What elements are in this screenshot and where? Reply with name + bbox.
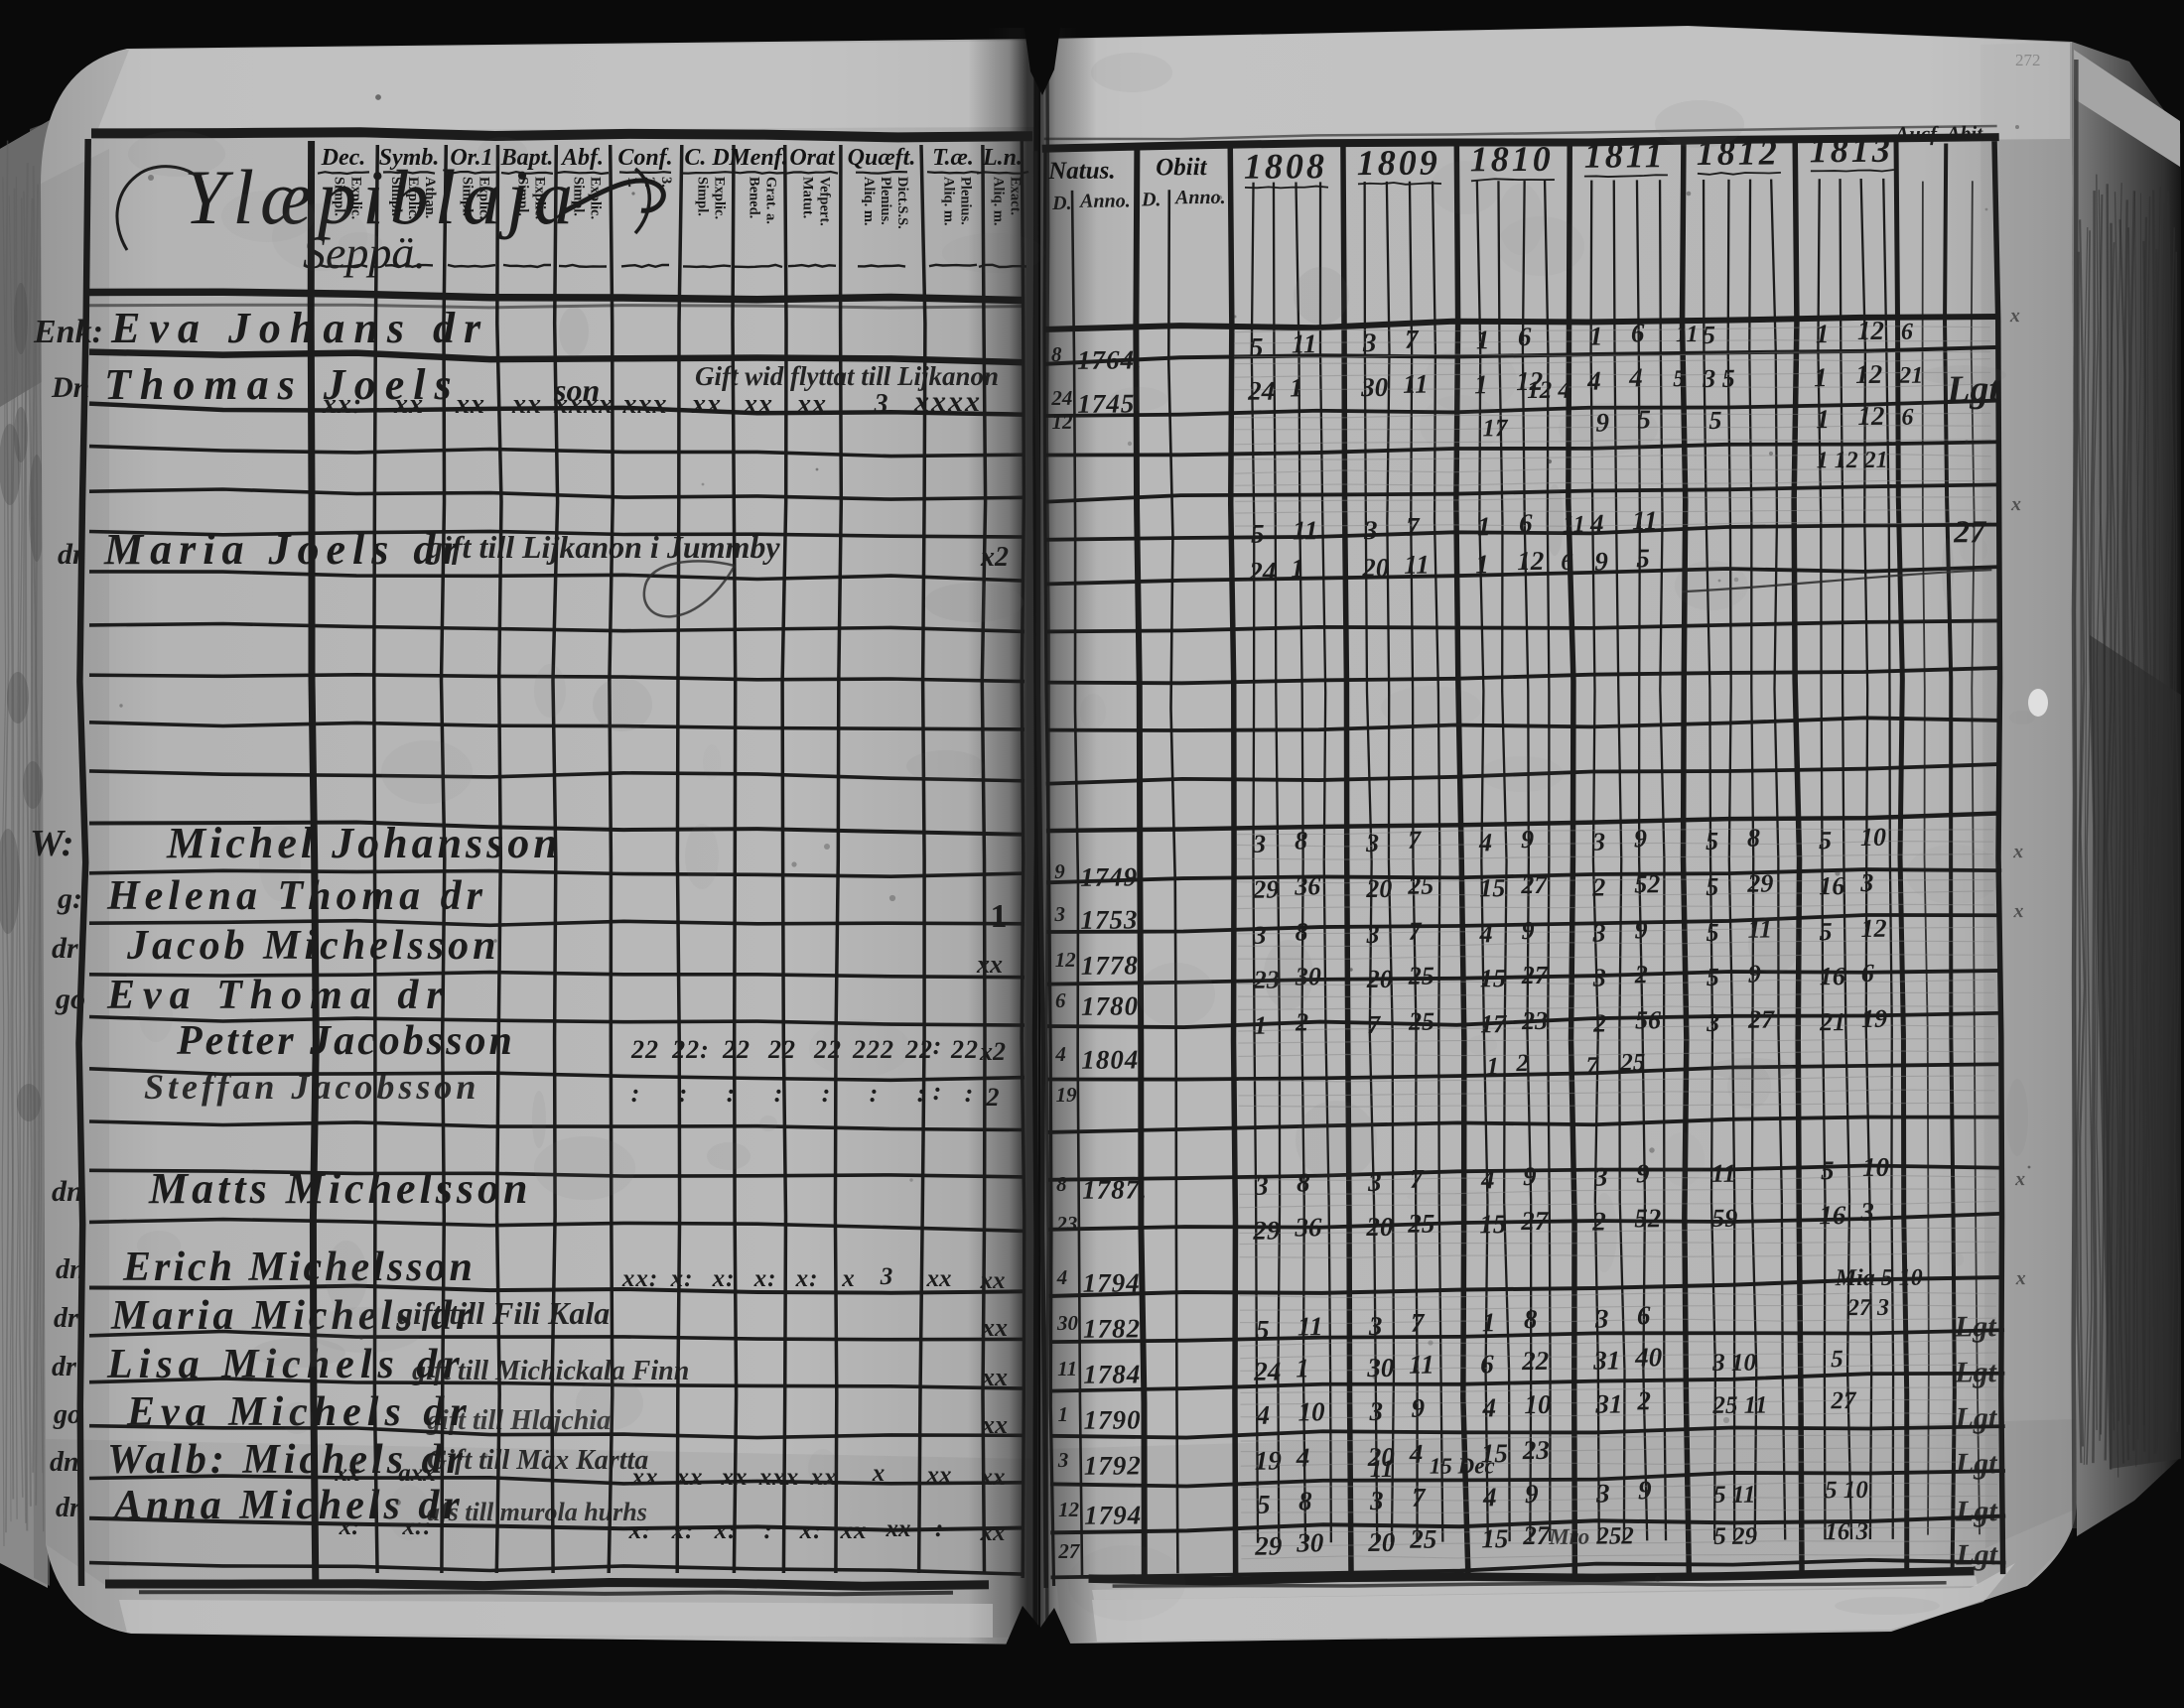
svg-text:29: 29 <box>1252 875 1279 904</box>
svg-text:6: 6 <box>1631 318 1645 347</box>
svg-text:9: 9 <box>1634 824 1647 853</box>
svg-text:52: 52 <box>1634 1203 1661 1233</box>
svg-text:xx: xx <box>980 1519 1006 1546</box>
svg-text:24: 24 <box>1248 557 1276 587</box>
svg-text:xx: xx <box>743 389 773 420</box>
svg-text:22:: 22: <box>671 1035 710 1064</box>
svg-text:Matut.: Matut. <box>800 177 816 218</box>
svg-text:L.n.: L.n. <box>982 145 1023 171</box>
svg-text:4: 4 <box>1255 1400 1270 1430</box>
svg-text:Simpl.: Simpl. <box>388 177 404 216</box>
svg-text:8: 8 <box>1747 824 1760 853</box>
svg-text:29: 29 <box>1254 1531 1283 1561</box>
svg-text:24: 24 <box>1253 1357 1281 1386</box>
svg-text:Jacob Michelsson: Jacob Michelsson <box>126 923 500 969</box>
svg-text:dn: dn <box>50 1447 79 1478</box>
svg-text:22: 22 <box>950 1035 979 1064</box>
svg-text:5: 5 <box>1703 321 1715 349</box>
svg-text:xx: xx <box>840 1517 868 1544</box>
svg-text:7: 7 <box>1406 512 1421 542</box>
svg-text:x:: x: <box>799 1517 823 1544</box>
svg-text:11: 11 <box>1297 1311 1323 1341</box>
svg-text:7: 7 <box>1410 1164 1425 1194</box>
svg-text:dn: dn <box>52 1175 83 1208</box>
svg-text:x:: x: <box>753 1265 777 1292</box>
svg-text:x: x <box>2015 1267 2026 1289</box>
svg-text:Plenius.: Plenius. <box>958 177 974 225</box>
svg-text:21: 21 <box>1819 1007 1845 1036</box>
svg-text:27 3: 27 3 <box>1846 1295 1889 1321</box>
svg-text:1780: 1780 <box>1081 990 1139 1020</box>
svg-text:3.: 3. <box>658 177 674 188</box>
svg-text:x:: x: <box>339 1513 360 1540</box>
svg-text:x2: x2 <box>980 542 1009 573</box>
svg-text:Mia 5 10: Mia 5 10 <box>1835 1265 1923 1292</box>
svg-text:5 10: 5 10 <box>1825 1477 1868 1504</box>
svg-text:xx: xx <box>796 389 827 420</box>
svg-text:11: 11 <box>1563 512 1585 538</box>
svg-text:go: go <box>55 983 85 1015</box>
svg-text:3: 3 <box>1592 964 1606 992</box>
svg-text:xx: xx <box>691 389 722 420</box>
svg-text:1: 1 <box>1477 511 1491 541</box>
svg-text:30: 30 <box>1296 1527 1324 1557</box>
svg-text:3 10: 3 10 <box>1711 1350 1756 1377</box>
svg-text:xx: xx <box>980 1267 1006 1294</box>
svg-text:xx: xx <box>926 1265 952 1292</box>
svg-text:x: x <box>2012 900 2023 922</box>
svg-text:12: 12 <box>1051 410 1073 434</box>
svg-text:6: 6 <box>1518 322 1532 351</box>
svg-text:1813: 1813 <box>1810 130 1893 171</box>
svg-text:6: 6 <box>1519 508 1533 538</box>
svg-text:23: 23 <box>1521 1006 1548 1035</box>
svg-text:20: 20 <box>1366 965 1393 993</box>
svg-text:22: 22 <box>767 1035 796 1064</box>
svg-text:11: 11 <box>1293 515 1318 545</box>
svg-text:3: 3 <box>1254 1171 1269 1201</box>
svg-text:31: 31 <box>1592 1346 1620 1376</box>
svg-text:22: 22 <box>630 1035 659 1064</box>
svg-text:4: 4 <box>1296 1442 1310 1472</box>
svg-text:3: 3 <box>1053 902 1065 926</box>
svg-text:2: 2 <box>1295 1007 1308 1036</box>
svg-text:3: 3 <box>1368 1311 1383 1341</box>
svg-text:22: 22 <box>1521 1346 1549 1376</box>
svg-text:Eva Johans dr: Eva Johans dr <box>110 304 489 352</box>
svg-text:dr: dr <box>58 538 84 571</box>
svg-text:22: 22 <box>722 1035 751 1064</box>
svg-text:8: 8 <box>1051 342 1062 366</box>
svg-text:1808: 1808 <box>1244 146 1327 187</box>
svg-text:27: 27 <box>1747 1005 1775 1034</box>
svg-text:29: 29 <box>1252 1216 1281 1246</box>
svg-text:axx: axx <box>398 1460 436 1487</box>
svg-text:Symb.: Symb. <box>379 145 440 171</box>
svg-text:dr: dr <box>56 1493 81 1523</box>
svg-text:3: 3 <box>1592 919 1606 948</box>
svg-text::: : <box>917 1079 926 1108</box>
svg-text:T.æ.: T.æ. <box>932 145 974 171</box>
svg-text:15: 15 <box>1479 1209 1506 1239</box>
svg-text:gift till Lijkanon i Jummby: gift till Lijkanon i Jummby <box>426 529 780 565</box>
svg-text:1764.: 1764. <box>1077 344 1143 374</box>
svg-text:afs till murola hurhs: afs till murola hurhs <box>427 1498 647 1526</box>
svg-text:29: 29 <box>1746 869 1773 898</box>
svg-text:Aliq. m.: Aliq. m. <box>991 177 1007 226</box>
svg-text:dr: dr <box>52 932 78 965</box>
svg-text:3: 3 <box>1057 1448 1069 1472</box>
svg-text:9: 9 <box>1054 859 1065 883</box>
svg-text:5 11: 5 11 <box>1713 1482 1756 1509</box>
svg-text:x: x <box>2010 493 2021 515</box>
svg-text::: : <box>965 1079 974 1108</box>
svg-text:11: 11 <box>1370 1456 1394 1483</box>
svg-text:x:: x: <box>671 1517 695 1544</box>
svg-text:11: 11 <box>1292 328 1317 358</box>
svg-text:12: 12 <box>1055 948 1077 972</box>
svg-text:5: 5 <box>1673 366 1685 392</box>
svg-text:Abf.: Abf. <box>560 145 604 171</box>
svg-text:12: 12 <box>1058 1498 1080 1521</box>
svg-text:xx: xx <box>926 1462 952 1489</box>
svg-text:4: 4 <box>1056 1265 1068 1289</box>
svg-text:xx: xx <box>455 389 485 420</box>
svg-text:6: 6 <box>1861 959 1874 987</box>
svg-text:9: 9 <box>1521 825 1534 854</box>
svg-text:xx:: xx: <box>621 1265 658 1292</box>
svg-text:21: 21 <box>1898 363 1923 389</box>
svg-text:Explic.: Explic. <box>712 177 728 219</box>
svg-text:3: 3 <box>1363 515 1378 545</box>
svg-text:25: 25 <box>1407 1209 1434 1239</box>
svg-text:1: 1 <box>991 898 1008 935</box>
svg-text:12: 12 <box>1860 914 1886 943</box>
svg-text:5: 5 <box>1819 917 1832 946</box>
svg-text:Simpl.: Simpl. <box>460 177 476 216</box>
svg-text:xxx: xxx <box>758 1464 800 1491</box>
svg-text:11: 11 <box>1711 1159 1736 1188</box>
svg-text:x: x <box>2012 841 2023 862</box>
svg-text:Aliq. m.: Aliq. m. <box>941 177 957 226</box>
svg-text:Simpl.: Simpl. <box>571 177 587 216</box>
svg-text:5: 5 <box>1706 963 1719 991</box>
svg-text:x: x <box>2009 305 2020 327</box>
svg-text:xxxx: xxxx <box>553 389 614 420</box>
svg-text:Petter Jacobsson: Petter Jacobsson <box>176 1018 515 1064</box>
svg-text:Bened.: Bened. <box>747 177 762 218</box>
svg-text:gift till Fili Kala: gift till Fili Kala <box>396 1295 610 1331</box>
svg-text:Gift till Mäx Kartta: Gift till Mäx Kartta <box>427 1445 648 1476</box>
svg-text:27: 27 <box>1057 1539 1081 1563</box>
svg-text:1749: 1749 <box>1080 861 1138 891</box>
svg-text:25: 25 <box>1408 1007 1434 1036</box>
svg-text:5 29: 5 29 <box>1713 1523 1757 1550</box>
svg-text::: : <box>822 1079 831 1108</box>
svg-text:15 Dec: 15 Dec <box>1430 1453 1495 1478</box>
svg-text:24: 24 <box>1050 386 1072 410</box>
svg-text:6: 6 <box>1901 405 1913 431</box>
svg-text:5: 5 <box>1706 827 1718 855</box>
svg-text:19: 19 <box>1056 1083 1078 1107</box>
svg-text:xx: xx <box>393 389 424 420</box>
svg-text:D.: D. <box>1141 189 1161 210</box>
svg-text:dr: dr <box>52 1352 77 1382</box>
svg-text:Dict.S.S.: Dict.S.S. <box>894 177 910 229</box>
svg-text:1790.: 1790. <box>1083 1404 1149 1434</box>
svg-text:25: 25 <box>1619 1049 1645 1076</box>
svg-text:16: 16 <box>1819 871 1844 900</box>
svg-text:56: 56 <box>1635 1005 1661 1034</box>
svg-text:1: 1 <box>1290 372 1303 402</box>
svg-text:1: 1 <box>1589 322 1603 351</box>
svg-text:1: 1 <box>1296 1353 1309 1382</box>
svg-text:5: 5 <box>1257 1490 1271 1519</box>
svg-text:Quæft.: Quæft. <box>848 145 916 171</box>
svg-text:xx: xx <box>631 1464 659 1491</box>
svg-text:30: 30 <box>1366 1353 1395 1382</box>
svg-text:5: 5 <box>1251 519 1265 549</box>
svg-text::: : <box>870 1079 879 1108</box>
svg-text:Conf.: Conf. <box>617 145 672 171</box>
svg-text:4: 4 <box>1589 509 1604 539</box>
svg-text:xxxx: xxxx <box>913 385 982 418</box>
svg-text:12: 12 <box>1857 316 1884 345</box>
svg-text:xx: xx <box>721 1464 749 1491</box>
svg-text::: : <box>727 1079 736 1108</box>
svg-text:xx: xx <box>511 389 542 420</box>
svg-text:31: 31 <box>1594 1388 1622 1418</box>
svg-text:1: 1 <box>1816 404 1830 434</box>
svg-text:27: 27 <box>1830 1387 1857 1414</box>
svg-text:Matts Michelsson: Matts Michelsson <box>148 1164 532 1213</box>
svg-text:5: 5 <box>1708 406 1721 435</box>
svg-text:1: 1 <box>1482 1307 1496 1337</box>
svg-text:5: 5 <box>1256 1315 1270 1345</box>
svg-text:Lgt: Lgt <box>1954 1310 1998 1343</box>
svg-text:3: 3 <box>1859 1197 1874 1227</box>
svg-text:6: 6 <box>1055 988 1066 1012</box>
svg-text:8: 8 <box>1297 1167 1310 1197</box>
svg-text:40: 40 <box>1634 1342 1663 1372</box>
svg-text:2.: 2. <box>641 177 657 188</box>
svg-text:7: 7 <box>1408 917 1422 946</box>
svg-text:xx: xx <box>676 1464 704 1491</box>
svg-text:Mro: Mro <box>1548 1524 1589 1549</box>
svg-text:5: 5 <box>1821 1155 1835 1185</box>
svg-text:4: 4 <box>1481 1392 1496 1422</box>
svg-text::: : <box>679 1079 688 1108</box>
svg-text:3: 3 <box>1368 1396 1383 1426</box>
svg-text:4: 4 <box>1409 1439 1424 1469</box>
svg-text:xxx: xxx <box>622 389 668 420</box>
svg-text:1794.: 1794. <box>1083 1267 1149 1297</box>
svg-text:xx: xx <box>981 1363 1008 1391</box>
svg-text:W:: W: <box>30 823 73 864</box>
svg-text:x:: x: <box>670 1265 694 1292</box>
svg-text:Explic.: Explic. <box>532 177 548 219</box>
svg-text:Dec.: Dec. <box>321 145 366 171</box>
svg-text:Aliq. m.: Aliq. m. <box>861 177 877 226</box>
svg-text:Simpl.: Simpl. <box>515 177 531 216</box>
svg-text:go: go <box>53 1399 81 1430</box>
svg-text:x:: x: <box>714 1517 738 1544</box>
svg-text:Plenius.: Plenius. <box>878 177 893 225</box>
svg-text:1 12 21: 1 12 21 <box>1817 448 1888 473</box>
svg-text:Exact.: Exact. <box>1008 177 1024 215</box>
svg-text::: : <box>935 1515 943 1542</box>
svg-text:27: 27 <box>1520 870 1548 899</box>
svg-text:11: 11 <box>1404 550 1430 580</box>
svg-text:Michel Johansson: Michel Johansson <box>166 819 562 867</box>
svg-text:Athan.: Athan. <box>422 177 438 218</box>
svg-text:3: 3 <box>1859 868 1873 897</box>
svg-text:3: 3 <box>1365 829 1379 857</box>
svg-text:4: 4 <box>1480 1164 1495 1194</box>
svg-text:36: 36 <box>1294 1212 1322 1242</box>
svg-text:2: 2 <box>1634 960 1648 988</box>
svg-text:x:: x: <box>712 1265 736 1292</box>
svg-text:8: 8 <box>1295 826 1307 854</box>
svg-text:3: 3 <box>1591 828 1605 856</box>
svg-text:25: 25 <box>1408 962 1434 990</box>
svg-text:1778: 1778 <box>1081 950 1139 980</box>
svg-text:Lgt: Lgt <box>1954 1401 1998 1434</box>
svg-text:1.: 1. <box>624 177 640 188</box>
svg-text:11: 11 <box>1676 322 1699 347</box>
svg-text:xx:: xx: <box>322 389 362 420</box>
svg-text:Explic.: Explic. <box>405 177 421 219</box>
svg-text:36: 36 <box>1294 871 1320 900</box>
svg-text:9: 9 <box>1525 1479 1539 1509</box>
svg-text:Anno.: Anno. <box>1173 187 1226 208</box>
svg-text:9: 9 <box>1594 547 1608 577</box>
svg-text:x2: x2 <box>979 1037 1006 1066</box>
svg-text:16: 16 <box>1819 1200 1846 1230</box>
svg-text::: : <box>774 1079 783 1108</box>
svg-text:7: 7 <box>1412 1483 1427 1512</box>
svg-text:9: 9 <box>1634 915 1647 944</box>
svg-text:3: 3 <box>1595 1479 1610 1509</box>
svg-text:1: 1 <box>1814 362 1828 392</box>
svg-text:12: 12 <box>1517 546 1544 576</box>
svg-text:x: x <box>2014 1168 2025 1190</box>
svg-text:1: 1 <box>1291 553 1304 583</box>
svg-text:17: 17 <box>1480 1009 1507 1038</box>
svg-text:gift till Michickala Finn: gift till Michickala Finn <box>411 1356 689 1386</box>
svg-text:2: 2 <box>1515 1050 1529 1077</box>
svg-text:5: 5 <box>1706 918 1718 947</box>
svg-text:6: 6 <box>1901 320 1913 345</box>
svg-text:3: 3 <box>1366 920 1380 949</box>
svg-text:23: 23 <box>1055 1212 1077 1236</box>
svg-text:27: 27 <box>1520 1206 1550 1236</box>
svg-text:4: 4 <box>1054 1042 1066 1066</box>
svg-text:30: 30 <box>1056 1311 1079 1335</box>
svg-text:6: 6 <box>1480 1349 1494 1379</box>
svg-text:7: 7 <box>1585 1053 1599 1080</box>
svg-text:11: 11 <box>1057 1357 1077 1380</box>
svg-text:Orat: Orat <box>789 145 836 171</box>
svg-text:Lgt: Lgt <box>1955 1447 1999 1480</box>
svg-text:15: 15 <box>1481 1523 1508 1553</box>
svg-text:1: 1 <box>1057 1402 1068 1426</box>
svg-text:6: 6 <box>1637 1300 1651 1330</box>
svg-text:x: x <box>841 1265 856 1292</box>
svg-text:52: 52 <box>1634 869 1660 898</box>
svg-text:3: 3 <box>1369 1486 1384 1515</box>
svg-text:27: 27 <box>1522 1520 1552 1550</box>
svg-text:4: 4 <box>1479 919 1493 948</box>
svg-text:3: 3 <box>1594 1304 1609 1334</box>
svg-text:1: 1 <box>1254 1011 1267 1040</box>
svg-text:Maria Joels dr: Maria Joels dr <box>103 525 466 574</box>
svg-text:3: 3 <box>1367 1167 1382 1197</box>
svg-text:x: x <box>872 1460 886 1487</box>
svg-text:7: 7 <box>1405 325 1420 354</box>
svg-text:1811: 1811 <box>1584 135 1666 176</box>
svg-text:7: 7 <box>1367 1010 1381 1039</box>
svg-text:x:: x: <box>628 1517 652 1544</box>
svg-text:3 5: 3 5 <box>1702 364 1735 393</box>
svg-text:Lgt: Lgt <box>1954 1356 1998 1388</box>
svg-text:10: 10 <box>1524 1389 1552 1419</box>
svg-text:19: 19 <box>1255 1446 1283 1476</box>
svg-text:C. D: C. D <box>684 145 729 171</box>
svg-text:8: 8 <box>1056 1172 1067 1196</box>
svg-text:5: 5 <box>1706 872 1718 901</box>
svg-text:1: 1 <box>1475 549 1489 579</box>
svg-text:16 3: 16 3 <box>1825 1518 1868 1545</box>
svg-text:Aucf. Abit.: Aucf. Abit. <box>1893 121 1987 146</box>
svg-text:D.: D. <box>1051 193 1072 214</box>
svg-text:Lgt: Lgt <box>1955 1538 1999 1571</box>
svg-text:1782: 1782 <box>1083 1313 1141 1343</box>
svg-text:3: 3 <box>880 1263 893 1290</box>
svg-text:4: 4 <box>1628 362 1643 392</box>
svg-text:9: 9 <box>1636 1158 1650 1188</box>
svg-text:15: 15 <box>1479 873 1505 902</box>
svg-text:xx: xx <box>976 950 1003 979</box>
svg-text:dn: dn <box>56 1254 85 1285</box>
svg-text:Lgt: Lgt <box>1955 1495 1999 1527</box>
svg-text:2: 2 <box>1592 1009 1606 1038</box>
svg-text:5: 5 <box>1831 1346 1843 1373</box>
svg-text:Explic.: Explic. <box>588 177 604 219</box>
svg-text:1: 1 <box>1816 319 1830 348</box>
svg-text:1784: 1784 <box>1083 1359 1141 1388</box>
svg-text:272: 272 <box>2015 51 2041 69</box>
svg-text:24: 24 <box>1247 376 1275 406</box>
svg-text:9: 9 <box>1411 1393 1425 1423</box>
svg-text:10: 10 <box>1862 1152 1890 1182</box>
svg-text:Simpl.: Simpl. <box>695 177 711 216</box>
svg-text::: : <box>933 1077 942 1106</box>
svg-text:5: 5 <box>1250 332 1264 362</box>
svg-text::: : <box>763 1517 772 1544</box>
svg-text:20: 20 <box>1365 1212 1394 1242</box>
svg-text:Anno.: Anno. <box>1078 190 1131 211</box>
svg-text:1753: 1753 <box>1080 904 1138 934</box>
svg-text::: : <box>631 1079 640 1108</box>
svg-text:3: 3 <box>1252 830 1266 858</box>
svg-text:1804: 1804 <box>1081 1044 1139 1074</box>
svg-text:10: 10 <box>1860 823 1886 852</box>
svg-text:xx: xx <box>980 1464 1006 1491</box>
svg-text:30: 30 <box>1360 372 1389 402</box>
svg-text:Menf.: Menf. <box>728 145 787 171</box>
svg-text:Vefpert.: Vefpert. <box>817 177 833 226</box>
